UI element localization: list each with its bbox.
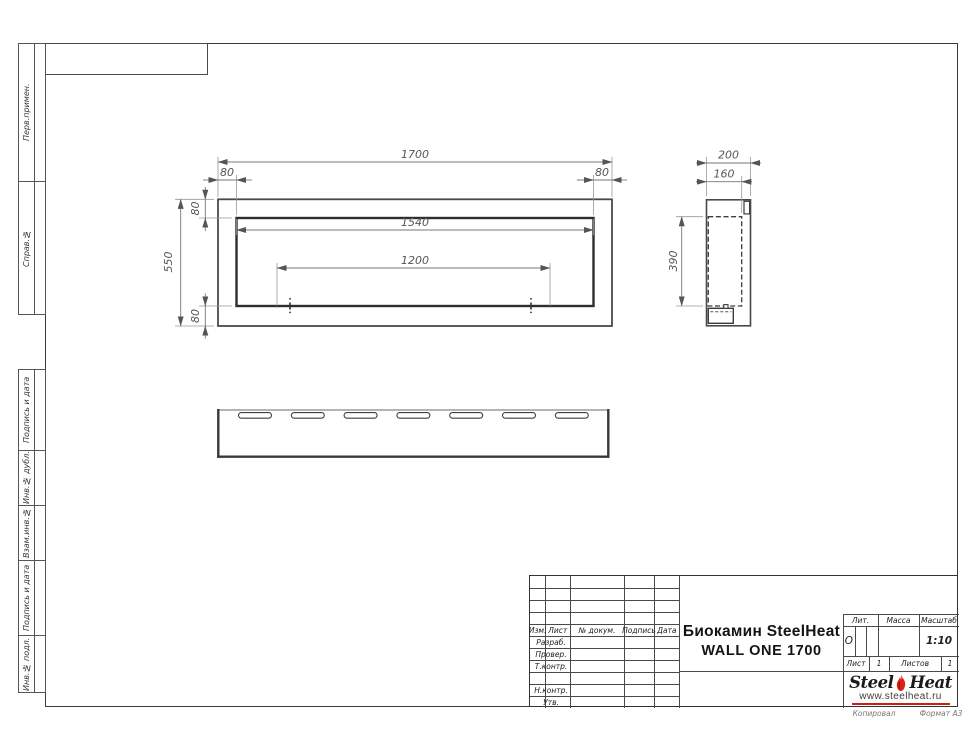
tb-header-docnum: № докум.	[570, 624, 623, 636]
logo-underline	[852, 703, 950, 705]
tb-sheets-value: 1	[941, 656, 959, 671]
cell-divider	[34, 182, 35, 314]
margin-cell-inv-podl: Инв.№ подл.	[18, 635, 46, 693]
tb-role-developed: Разраб.	[532, 636, 570, 648]
cell-divider	[34, 506, 35, 560]
margin-cell-podpis-data-2: Подпись и дата	[18, 560, 46, 636]
tb-line	[530, 600, 679, 601]
tb-mass-label: Масса	[878, 614, 919, 626]
copied-note: Копировал	[843, 709, 905, 718]
document-title-line1: Биокамин SteelHeat	[683, 623, 840, 641]
tb-scale-label: Масштаб	[919, 614, 959, 626]
tb-role-checked: Провер.	[532, 648, 570, 660]
margin-label: Справ.№	[19, 182, 34, 314]
cell-divider	[34, 636, 35, 692]
flame-icon	[894, 674, 908, 692]
corner-designation-box	[45, 43, 208, 75]
tb-sheet-value: 1	[869, 656, 889, 671]
tb-sheets-label: Листов	[889, 656, 941, 671]
margin-cell-podpis-data-1: Подпись и дата	[18, 369, 46, 451]
logo-url: www.steelheat.ru	[859, 691, 942, 702]
margin-label: Подпись и дата	[19, 370, 34, 450]
logo-row: Steel Heat	[849, 673, 952, 692]
tb-header-date: Дата	[654, 624, 679, 636]
tb-role-ncontrol: Н.контр.	[532, 684, 570, 696]
document-title: Биокамин SteelHeat WALL ONE 1700	[680, 612, 843, 670]
margin-cell-sprav-no: Справ.№	[18, 181, 46, 315]
cell-divider	[34, 451, 35, 505]
tb-line	[530, 672, 679, 673]
tb-header-sign: Подпись	[624, 624, 655, 636]
tb-line	[530, 588, 679, 589]
margin-cell-perv-primen: Перв.примен.	[18, 43, 46, 182]
cell-divider	[34, 370, 35, 450]
cell-divider	[34, 561, 35, 635]
tb-role-approved: Утв.	[532, 696, 570, 708]
tb-role-tcontrol: Т.контр.	[532, 660, 570, 672]
document-title-line2: WALL ONE 1700	[701, 643, 821, 659]
margin-label: Перв.примен.	[19, 44, 34, 181]
tb-header-list: Лист	[545, 624, 570, 636]
tb-scale-value: 1:10	[919, 626, 959, 656]
logo-heat-text: Heat	[909, 673, 951, 692]
tb-line	[654, 576, 655, 708]
steelheat-logo: Steel Heat www.steelheat.ru	[843, 671, 958, 707]
format-note: Формат А3	[912, 709, 970, 718]
margin-label: Инв.№ дубл.	[19, 451, 34, 505]
tb-lit-label: Лит.	[843, 614, 878, 626]
tb-line	[866, 626, 867, 656]
tb-lit-value: О	[843, 626, 855, 656]
title-block: Изм. Лист № докум. Подпись Дата Разраб. …	[529, 575, 958, 707]
logo-steel-text: Steel	[849, 673, 893, 692]
drawing-sheet: 1700 80 80 1540 1200 550 80 80 200 160 3…	[0, 0, 970, 749]
margin-label: Подпись и дата	[19, 561, 34, 635]
tb-sheet-label: Лист	[843, 656, 869, 671]
margin-cell-vzam-inv: Взам.инв.№	[18, 505, 46, 561]
cell-divider	[34, 44, 35, 181]
tb-line	[570, 576, 571, 708]
tb-line	[624, 576, 625, 708]
margin-cell-inv-dubl: Инв.№ дубл.	[18, 450, 46, 506]
margin-label: Взам.инв.№	[19, 506, 34, 560]
tb-line	[530, 612, 679, 613]
tb-line	[855, 626, 856, 656]
margin-label: Инв.№ подл.	[19, 636, 34, 692]
tb-header-izm: Изм.	[530, 624, 545, 636]
